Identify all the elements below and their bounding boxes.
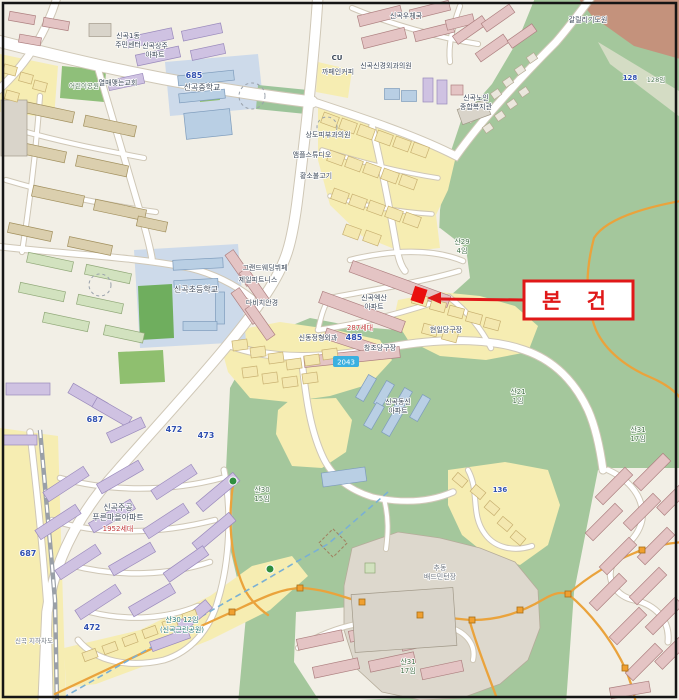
map-label: 128임 (647, 76, 665, 84)
building (6, 383, 50, 395)
map-label: 푸른마을아파트 (92, 512, 144, 522)
map-label: 산29 (454, 237, 469, 246)
map-label: 배드민턴장 (424, 572, 457, 581)
map-label: 아파트 (364, 302, 384, 311)
map-label: 열매맺는교회 (99, 78, 138, 87)
map-label: 687 (87, 415, 104, 424)
map-label: 17임 (400, 667, 415, 675)
field-elem (138, 284, 174, 340)
building (282, 376, 298, 388)
map-label: 128 (623, 74, 638, 82)
map-label: 다비치안경 (246, 298, 278, 307)
building (423, 78, 433, 102)
trail-waypoint-icon (359, 599, 365, 605)
building (262, 372, 278, 384)
map-label: 신곡엑산 (361, 293, 387, 302)
map-label: 산31 (400, 657, 415, 666)
building (216, 292, 225, 324)
building (302, 372, 318, 384)
map-label: 신곡노인 (463, 93, 489, 102)
bus-stop-number: 2043 (337, 359, 355, 367)
trail-waypoint-icon (417, 612, 423, 618)
building (451, 85, 463, 95)
map-label: 472 (84, 623, 101, 632)
trail-waypoint-icon (297, 585, 303, 591)
map-frame: 2043685신곡중학교신곡상주아파트신곡초등학교신곡주공푸른마을아파트1952… (0, 0, 679, 700)
map-label: 687 (20, 549, 37, 558)
annotation-arrow-line (440, 299, 524, 300)
trail-waypoint-icon (622, 665, 628, 671)
trail-waypoint-icon (565, 591, 571, 597)
map-label: 추동 (434, 564, 447, 572)
trail-waypoint-icon (469, 617, 475, 623)
map-label: 앰플스튜디오 (293, 150, 332, 159)
map-label: 485 (346, 333, 363, 342)
map-label: 473 (198, 431, 215, 440)
map-label: 신곡1동 (116, 31, 140, 40)
map-label: 136 (493, 486, 508, 494)
map-label: 제일피트니스 (239, 275, 278, 284)
building (286, 358, 302, 370)
map-label: 어린이공원 (69, 81, 99, 90)
map-label: 신곡동신 (385, 397, 411, 406)
map-label: 17임 (630, 435, 645, 443)
map-canvas: 2043685신곡중학교신곡상주아파트신곡초등학교신곡주공푸른마을아파트1952… (0, 0, 679, 700)
map-label: 현일당구장 (430, 325, 463, 334)
building (250, 346, 266, 358)
trailhead-icon (266, 565, 274, 573)
map-label: 갈릴리기도원 (569, 15, 608, 24)
trail-waypoint-icon (639, 547, 645, 553)
map-label: 신곡초등학교 (174, 284, 218, 294)
building (173, 258, 223, 271)
map-label: 신곡상주 (142, 41, 168, 50)
map-label: 산21 (510, 387, 525, 396)
building (402, 91, 417, 102)
map-label: 그랜드웨딩뷔페 (242, 263, 287, 272)
map-label: 아파트 (145, 50, 165, 59)
building (184, 109, 232, 140)
building (437, 80, 447, 104)
map-label: 1임 (513, 397, 524, 405)
map-label: 산30 12임 (166, 615, 199, 624)
map-label: 황소불고기 (300, 171, 332, 180)
annotation-label: 본 건 (542, 289, 615, 313)
map-label: (신곡근린공원) (160, 625, 204, 634)
building (232, 339, 248, 351)
map-label: 산31 (630, 425, 645, 434)
map-label: 신곡신경외과의원 (360, 61, 412, 70)
building (351, 588, 457, 653)
map-label: 산30 (254, 485, 269, 494)
map-label: 신동정형외과 (299, 333, 338, 342)
map-label: 472 (166, 425, 183, 434)
trailhead-icon (229, 477, 237, 485)
building (385, 89, 400, 100)
map-svg: 2043685신곡중학교신곡상주아파트신곡초등학교신곡주공푸른마을아파트1952… (0, 0, 679, 700)
map-label: 까페인커피 (322, 67, 354, 76)
map-label: 신곡우체국 (390, 11, 423, 20)
building (89, 24, 111, 37)
map-label: 신곡주공 (103, 503, 132, 512)
map-label: 창조당구장 (364, 343, 397, 352)
building (183, 322, 217, 331)
map-label: 신곡 지하차도 (15, 636, 53, 645)
map-label: 종합복지관 (460, 102, 493, 111)
map-label: 주민센터 (115, 40, 141, 49)
building (3, 435, 37, 445)
trail-waypoint-icon (229, 609, 235, 615)
field-south (118, 350, 165, 384)
map-label: 15임 (254, 495, 269, 503)
map-label: 신곡중학교 (184, 82, 221, 92)
building (1, 100, 27, 156)
building (304, 354, 320, 366)
map-label: 287세대 (347, 323, 373, 332)
map-label: 685 (186, 71, 203, 80)
map-label: 상도피부과의원 (305, 130, 350, 139)
map-label: 아파트 (388, 406, 408, 415)
map-label: 1952세대 (103, 524, 134, 533)
building (365, 563, 375, 573)
trail-waypoint-icon (517, 607, 523, 613)
map-label: CU (332, 54, 343, 62)
building (268, 352, 284, 364)
building (242, 366, 258, 378)
map-label: 4임 (457, 247, 468, 255)
